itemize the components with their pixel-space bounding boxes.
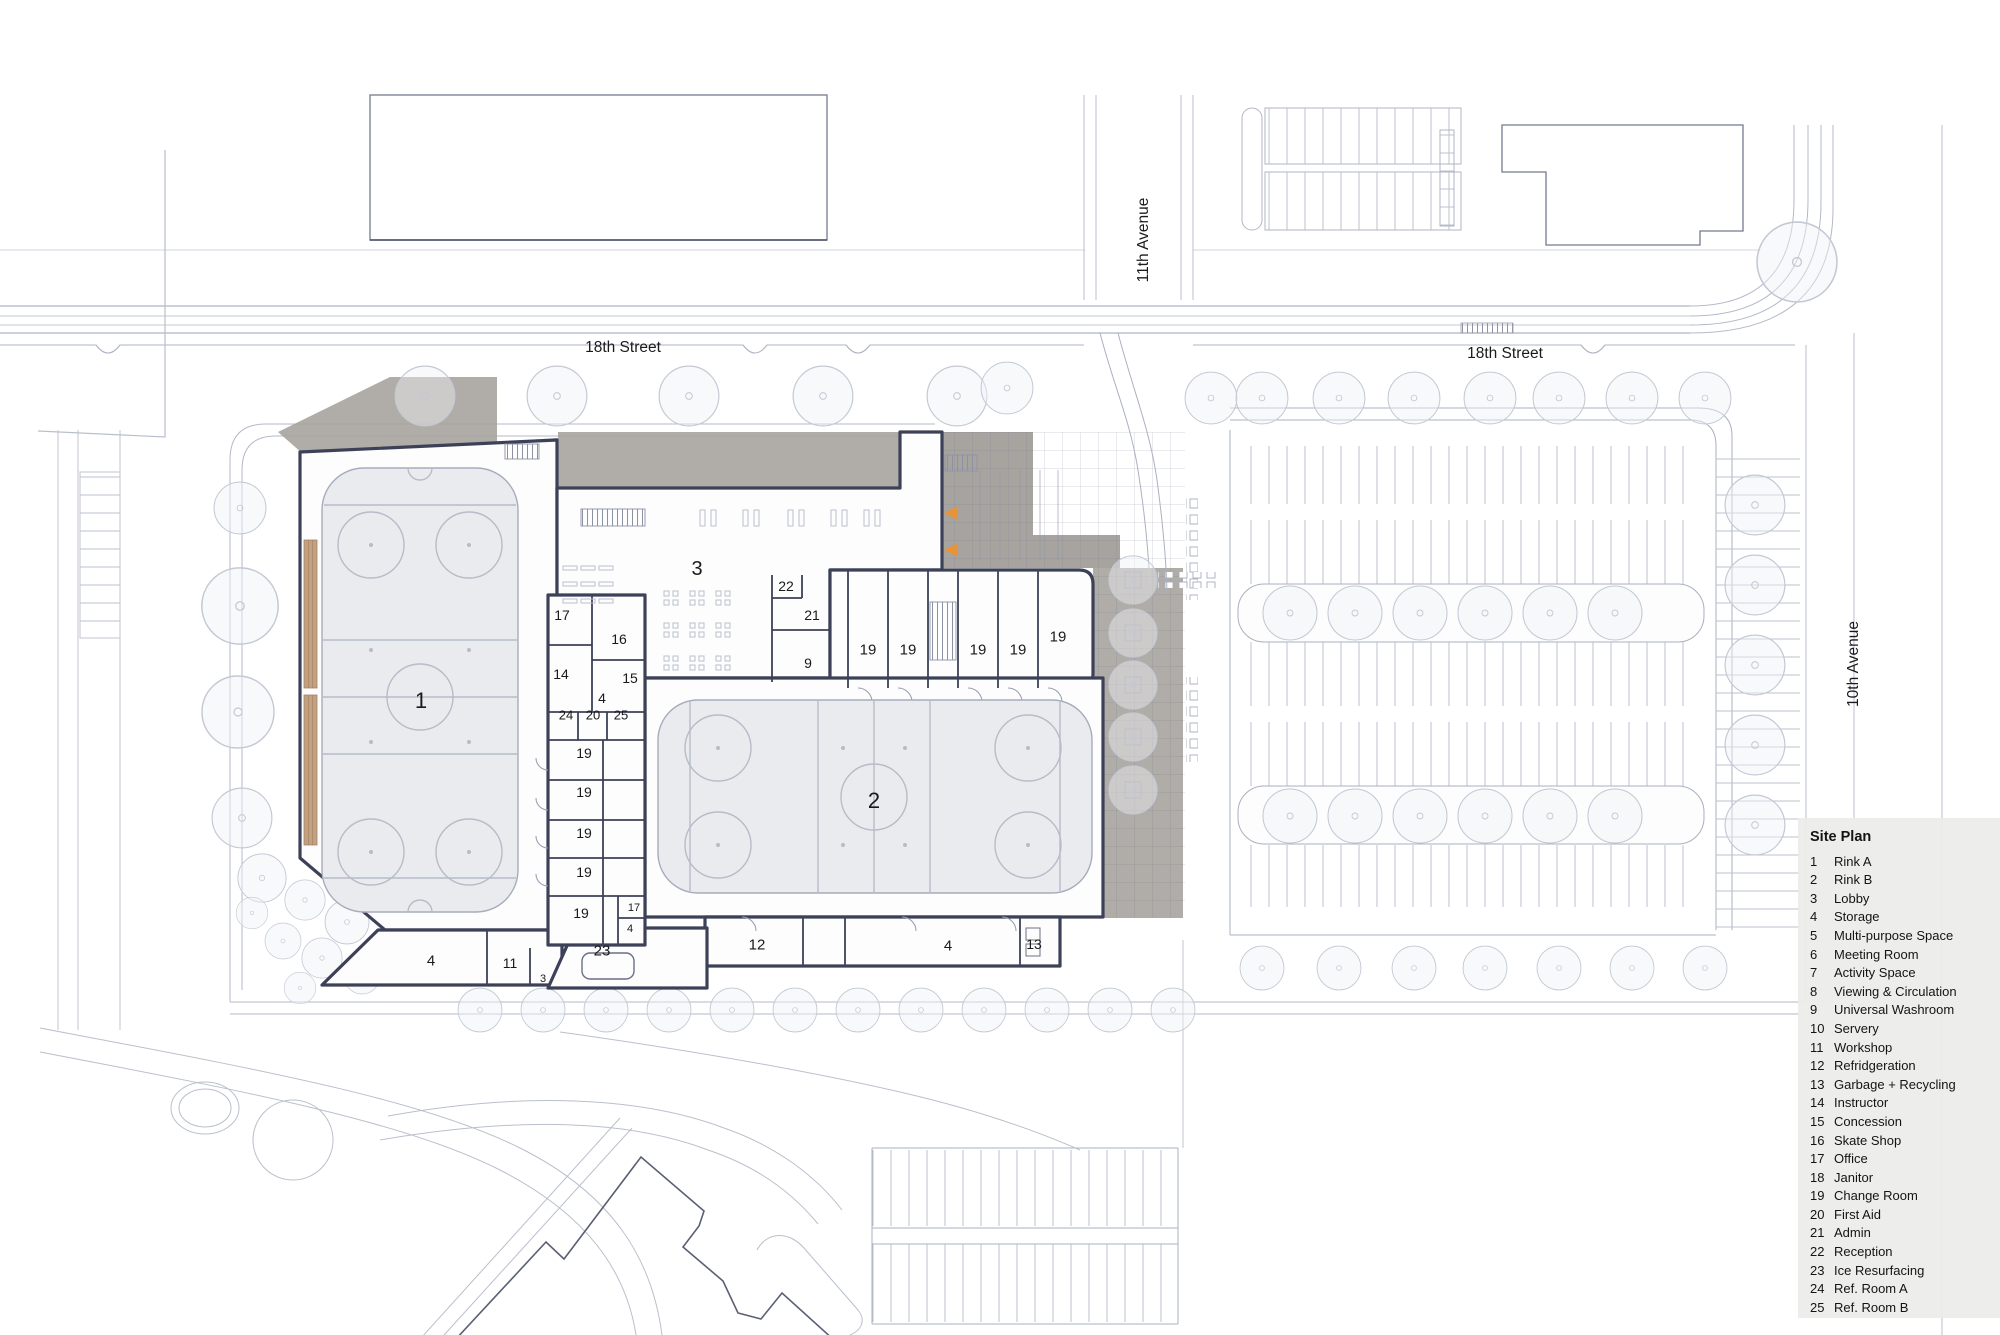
legend-item: 21Admin [1810,1224,2000,1243]
legend-item: 18Janitor [1810,1169,2000,1188]
wing-stairs [930,602,956,660]
legend-item-number: 3 [1810,890,1834,909]
legend-item-number: 5 [1810,927,1834,946]
room-number-label: 20 [586,708,600,723]
legend-item-label: Admin [1834,1224,2000,1243]
legend-item-number: 21 [1810,1224,1834,1243]
room-number-label: 22 [778,578,794,594]
legend-item: 9Universal Washroom [1810,1001,2000,1020]
building-north-center [370,95,827,240]
legend-item: 15Concession [1810,1113,2000,1132]
adjacent-building-outline [455,1157,845,1335]
room-number-label: 9 [804,655,812,671]
room-number-label: 19 [573,905,589,921]
pond [171,1082,239,1134]
legend-item: 10Servery [1810,1020,2000,1039]
room-number-label: 19 [576,864,592,880]
legend-item-label: Rink B [1834,871,2000,890]
legend-item-number: 2 [1810,871,1834,890]
legend-item-label: Reception [1834,1243,2000,1262]
legend-item: 8Viewing & Circulation [1810,983,2000,1002]
legend-item-label: Change Room [1834,1187,2000,1206]
parking-east [1183,408,1800,1148]
street-label-10th-avenue: 10th Avenue [1845,621,1862,707]
room-number-label: 21 [804,607,820,623]
legend-item-number: 19 [1810,1187,1834,1206]
legend-item: 13Garbage + Recycling [1810,1076,2000,1095]
street-west-lane [58,430,120,1030]
legend-item-label: Ice Resurfacing [1834,1262,2000,1281]
legend-item-label: Workshop [1834,1039,2000,1058]
crosswalk-dashes [1186,677,1198,762]
legend-item-label: Office [1834,1150,2000,1169]
legend-item: 19Change Room [1810,1187,2000,1206]
legend-item-label: Multi-purpose Space [1834,927,2000,946]
room-number-label: 17 [554,607,570,623]
legend-item-number: 13 [1810,1076,1834,1095]
legend-item-number: 24 [1810,1280,1834,1299]
legend-item-label: Viewing & Circulation [1834,983,2000,1002]
legend-item-label: Servery [1834,1020,2000,1039]
legend-item: 23Ice Resurfacing [1810,1262,2000,1281]
legend-item: 22Reception [1810,1243,2000,1262]
room-number-label: 12 [749,936,766,953]
room-number-label: 19 [860,641,877,658]
parking-south [872,1148,1178,1324]
legend-item: 1Rink A [1810,853,2000,872]
legend-item: 2Rink B [1810,871,2000,890]
legend-title: Site Plan [1810,828,2000,847]
room-number-label: 11 [503,955,518,971]
legend-item-number: 9 [1810,1001,1834,1020]
legend-item-label: Universal Washroom [1834,1001,2000,1020]
plaza-steps [945,455,977,471]
legend-item-label: Skate Shop [1834,1132,2000,1151]
legend-item-label: Ref. Room A [1834,1280,2000,1299]
legend-item-number: 16 [1810,1132,1834,1151]
street-label-11th-avenue: 11th Avenue [1135,198,1152,283]
legend-item-number: 11 [1810,1039,1834,1058]
site-plan-page: 1232221919191919191716141542420251919191… [0,0,2000,1335]
legend-item-label: Instructor [1834,1094,2000,1113]
center-room-strip [548,595,645,945]
room-number-label: 3 [540,973,546,985]
room-number-label: 4 [598,690,606,706]
room-number-label: 19 [900,641,917,658]
legend-item: 24Ref. Room A [1810,1280,2000,1299]
legend-item-label: Ref. Room B [1834,1299,2000,1318]
room-number-label: 19 [1010,641,1027,658]
room-number-label: 4 [627,923,633,935]
room-number-label: 4 [944,937,952,954]
room-number-label: 16 [611,631,627,647]
legend-item: 17Office [1810,1150,2000,1169]
legend-item-number: 25 [1810,1299,1834,1318]
room-number-label: 19 [576,784,592,800]
room-number-label: 23 [594,942,611,959]
legend-item-number: 17 [1810,1150,1834,1169]
lobby-stairs [581,509,645,526]
legend-item-label: Meeting Room [1834,946,2000,965]
legend-item-number: 23 [1810,1262,1834,1281]
legend-item-number: 14 [1810,1094,1834,1113]
legend-item-label: Lobby [1834,890,2000,909]
legend-item: 5Multi-purpose Space [1810,927,2000,946]
room-number-label: 4 [427,952,435,969]
legend-panel: Site Plan 1Rink A2Rink B3Lobby4Storage5M… [1798,818,2000,1318]
legend-item-number: 20 [1810,1206,1834,1225]
legend-item: 12Refridgeration [1810,1057,2000,1076]
legend-item-number: 8 [1810,983,1834,1002]
room-number-label: 2 [868,788,880,813]
legend-item-number: 15 [1810,1113,1834,1132]
room-number-label: 24 [559,708,573,723]
room-number-label: 1 [415,688,427,713]
legend-item-number: 7 [1810,964,1834,983]
legend-item-number: 4 [1810,908,1834,927]
legend-item: 7Activity Space [1810,964,2000,983]
legend-item-label: Janitor [1834,1169,2000,1188]
legend-item-label: First Aid [1834,1206,2000,1225]
legend-item-label: Activity Space [1834,964,2000,983]
legend-item-number: 6 [1810,946,1834,965]
legend-item-label: Concession [1834,1113,2000,1132]
curb-ramp-hatch [1461,323,1513,333]
street-label-18th-right: 18th Street [1467,345,1544,362]
legend-item-number: 18 [1810,1169,1834,1188]
legend-item: 25Ref. Room B [1810,1299,2000,1318]
street-label-18th-left: 18th Street [585,339,662,356]
parking-north [1242,108,1461,230]
room-number-label: 19 [970,641,987,658]
legend-item: 4Storage [1810,908,2000,927]
room-number-label: 25 [614,708,628,723]
legend-item-label: Storage [1834,908,2000,927]
building-northwest [38,150,165,437]
legend-item: 11Workshop [1810,1039,2000,1058]
legend-item-number: 10 [1810,1020,1834,1039]
room-number-label: 19 [576,825,592,841]
room-number-label: 14 [553,666,569,682]
room-number-label: 15 [622,670,638,686]
room-number-label: 19 [576,745,592,761]
room-number-label: 19 [1050,628,1067,645]
building-northeast [1502,125,1743,245]
room-number-label: 17 [628,902,640,914]
room-number-label: 13 [1026,936,1042,952]
site-plan-drawing: 1232221919191919191716141542420251919191… [0,0,2000,1335]
legend-item-number: 1 [1810,853,1834,872]
legend-item: 20First Aid [1810,1206,2000,1225]
entry-steps [505,444,539,459]
legend-item: 6Meeting Room [1810,946,2000,965]
legend-item-number: 12 [1810,1057,1834,1076]
legend-item: 14Instructor [1810,1094,2000,1113]
room-number-label: 3 [691,558,702,580]
legend-item-label: Garbage + Recycling [1834,1076,2000,1095]
legend-item-number: 22 [1810,1243,1834,1262]
legend-item: 3Lobby [1810,890,2000,909]
legend-item-label: Refridgeration [1834,1057,2000,1076]
legend-item-label: Rink A [1834,853,2000,872]
legend-item: 16Skate Shop [1810,1132,2000,1151]
